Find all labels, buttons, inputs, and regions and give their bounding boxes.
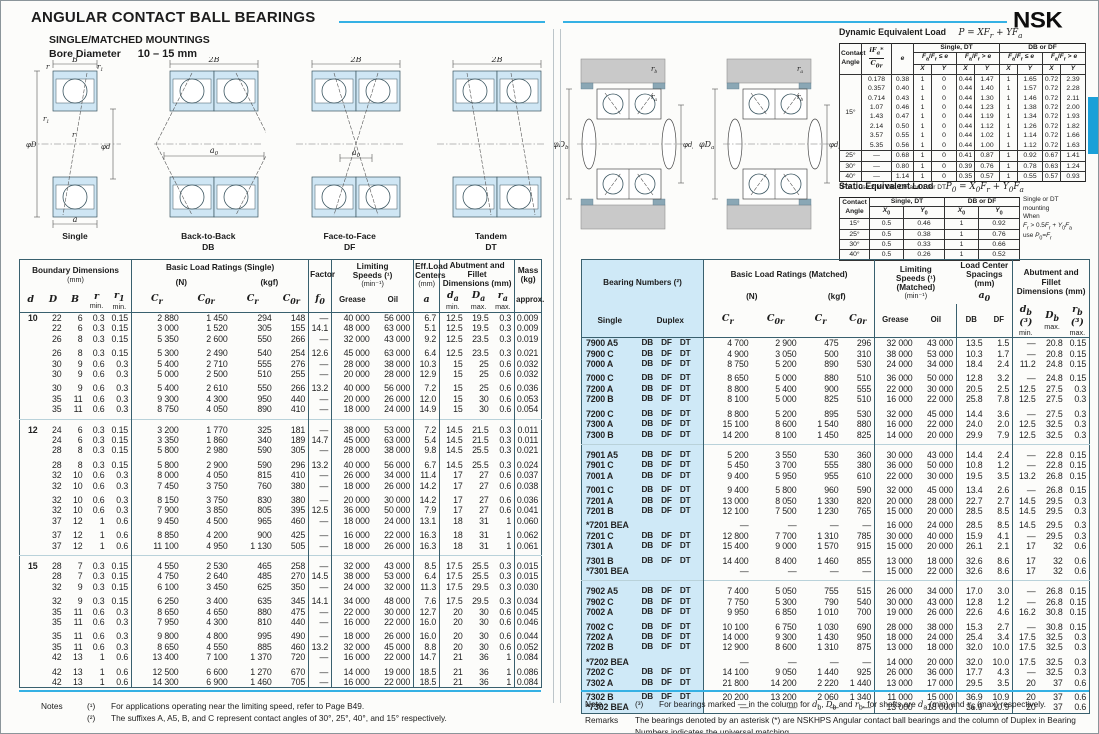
cell: 6 600 bbox=[182, 667, 231, 677]
table-row: 35110.60.38 6504 650880475—22 00030 0001… bbox=[20, 607, 542, 617]
cell: 20 bbox=[440, 617, 466, 627]
cell: 5.4 bbox=[414, 435, 440, 445]
cell: 0.3 bbox=[86, 323, 108, 333]
cell: 10 bbox=[65, 495, 86, 505]
cell: 0.5 bbox=[870, 219, 904, 229]
cell: 30 000 bbox=[916, 471, 957, 481]
cell: — bbox=[309, 516, 332, 526]
cell: 32 bbox=[42, 495, 65, 505]
cell: 18 bbox=[440, 541, 466, 551]
cell: 705 bbox=[275, 677, 309, 688]
cell: 258 bbox=[275, 561, 309, 571]
cell: 20 000 bbox=[332, 495, 373, 505]
cell: 1 440 bbox=[800, 667, 842, 677]
cell: 30 bbox=[42, 383, 65, 393]
cell: 21 800 bbox=[704, 678, 752, 688]
table-row: 35110.60.38 7504 050890410—18 00024 0001… bbox=[20, 404, 542, 414]
cell: 5 800 bbox=[132, 460, 182, 470]
cell: 0.80 bbox=[892, 161, 914, 171]
cell: 24 bbox=[42, 425, 65, 435]
cell: DB DF DT bbox=[638, 506, 704, 516]
cell: 7 950 bbox=[132, 617, 182, 627]
cell: 0.3 bbox=[492, 323, 515, 333]
cell: 28.5 bbox=[957, 506, 986, 516]
cell: 8 bbox=[65, 445, 86, 455]
notes-right: Note (³) For bearings marked — in the co… bbox=[585, 698, 1091, 734]
cell: 0.6 bbox=[108, 677, 132, 688]
cell: 0.178 bbox=[862, 74, 892, 84]
table-row: 2870.30.154 7502 64048527014.538 00053 0… bbox=[20, 571, 542, 581]
cell: 270 bbox=[275, 571, 309, 581]
cell: 895 bbox=[800, 409, 842, 419]
cell: 14.4 bbox=[957, 450, 986, 460]
cell: — bbox=[309, 369, 332, 379]
cell: 2 600 bbox=[182, 334, 231, 344]
cell: 16 000 bbox=[332, 652, 373, 662]
cell: 30 bbox=[466, 631, 492, 641]
cell: 0.3 bbox=[492, 582, 515, 592]
cell: 0.3 bbox=[86, 348, 108, 358]
cell: 45 000 bbox=[916, 485, 957, 495]
cell: 0.15 bbox=[108, 445, 132, 455]
cell: 0.041 bbox=[515, 505, 542, 515]
cell: 875 bbox=[842, 642, 875, 652]
cell: 28 000 bbox=[332, 359, 373, 369]
table-row: 7202 BDB DF DT12 9008 6001 31087513 0001… bbox=[582, 642, 1090, 652]
cell: 1 430 bbox=[800, 632, 842, 642]
cell: 63 000 bbox=[373, 323, 414, 333]
cell: 0.3 bbox=[86, 460, 108, 470]
cell: 29.5 bbox=[466, 596, 492, 606]
cell: DB DF DT bbox=[638, 556, 704, 566]
cell: — bbox=[1013, 531, 1039, 541]
table-row: 3090.60.35 4002 61055026613.240 00056 00… bbox=[20, 383, 542, 393]
cell: 1 bbox=[914, 131, 932, 140]
cell: 0.6 bbox=[86, 607, 108, 617]
cell: 1 130 bbox=[231, 541, 275, 551]
cell: 0.084 bbox=[515, 677, 542, 688]
col-factor: Factor bbox=[309, 260, 332, 290]
cell: 32 bbox=[42, 470, 65, 480]
cell: 790 bbox=[800, 597, 842, 607]
cell: 15 bbox=[20, 561, 42, 571]
cell: 28 000 bbox=[875, 622, 916, 632]
title-rule-left bbox=[339, 21, 545, 23]
cell: DB DF DT bbox=[638, 597, 704, 607]
svg-text:a: a bbox=[73, 215, 78, 224]
cell: 0 bbox=[932, 141, 957, 151]
cell: 1.02 bbox=[975, 131, 1000, 140]
cell: 7201 A bbox=[582, 496, 638, 506]
cell: 0.15 bbox=[108, 460, 132, 470]
bearing-diagram-db: 2Ba0 bbox=[150, 57, 266, 229]
cell: 16 000 bbox=[875, 394, 916, 404]
cell bbox=[20, 470, 42, 480]
cell: 610 bbox=[842, 471, 875, 481]
cell: 1 bbox=[1000, 151, 1018, 161]
cell: 410 bbox=[275, 470, 309, 480]
cell: 7300 B bbox=[582, 430, 638, 440]
cell: 0.009 bbox=[515, 312, 542, 323]
cell: 915 bbox=[842, 541, 875, 551]
cell: 475 bbox=[275, 607, 309, 617]
cell: 18 000 bbox=[332, 516, 373, 526]
cell: 3 750 bbox=[182, 481, 231, 491]
cell: 11 bbox=[65, 394, 86, 404]
cell: 0.15 bbox=[108, 435, 132, 445]
cell: 880 bbox=[842, 419, 875, 429]
cell: 1 bbox=[945, 219, 979, 229]
cell: 900 bbox=[231, 530, 275, 540]
cell: 42 bbox=[42, 677, 65, 688]
cell: 8.5 bbox=[986, 520, 1013, 530]
cell: 20 000 bbox=[916, 541, 957, 551]
cell: 14 100 bbox=[704, 667, 752, 677]
table-row: 102260.30.152 8801 450294148—40 00056 00… bbox=[20, 312, 542, 323]
cell: 555 bbox=[800, 460, 842, 470]
cell: 0 bbox=[932, 131, 957, 140]
cell: 380 bbox=[842, 460, 875, 470]
cell: 10 bbox=[20, 312, 42, 323]
remarks-label: Remarks bbox=[585, 714, 633, 734]
cell: 995 bbox=[231, 631, 275, 641]
cell: 2 710 bbox=[182, 359, 231, 369]
cell: 825 bbox=[800, 394, 842, 404]
table-row: 7202 ADB DF DT14 0009 3001 43095018 0002… bbox=[582, 632, 1090, 642]
cell: 12.7 bbox=[414, 607, 440, 617]
cell: 56 000 bbox=[373, 312, 414, 323]
cell: 7202 C bbox=[582, 667, 638, 677]
cell: 0.3 bbox=[1066, 506, 1090, 516]
cell: 16 000 bbox=[332, 530, 373, 540]
cell: 635 bbox=[231, 596, 275, 606]
cell: 1 bbox=[1000, 122, 1018, 131]
cell: 380 bbox=[275, 495, 309, 505]
cell: 31 bbox=[466, 541, 492, 551]
cell: 2.5 bbox=[986, 384, 1013, 394]
cell: 380 bbox=[275, 481, 309, 491]
cell: 9.2 bbox=[414, 334, 440, 344]
matched-bearings-table-wrap: Bearing Numbers (²) Basic Load Ratings (… bbox=[581, 259, 1089, 714]
table-row: 2260.30.153 0001 52030515514.148 00063 0… bbox=[20, 323, 542, 333]
cell: 7901 A5 bbox=[582, 450, 638, 460]
cell: 1 270 bbox=[231, 667, 275, 677]
cell: DB DF DT bbox=[638, 485, 704, 495]
cell: 0.011 bbox=[515, 425, 542, 435]
cell: 1.2 bbox=[986, 597, 1013, 607]
cell: 32 bbox=[1039, 566, 1066, 576]
cell bbox=[20, 667, 42, 677]
cell: 7 500 bbox=[752, 506, 800, 516]
table-row: 0.7140.43100.441.3011.460.722.11 bbox=[840, 94, 1086, 103]
cell: 0.3 bbox=[1066, 520, 1090, 530]
cell: 20 000 bbox=[916, 430, 957, 440]
cell: 3.57 bbox=[862, 131, 892, 140]
cell: 45 000 bbox=[916, 409, 957, 419]
cell: 8 100 bbox=[704, 394, 752, 404]
cell: 26 000 bbox=[373, 631, 414, 641]
cell: 0.44 bbox=[957, 84, 975, 93]
cell: 32 bbox=[1039, 556, 1066, 566]
cell: DB DF DT bbox=[638, 430, 704, 440]
cell: 15° bbox=[840, 74, 862, 150]
cell: 0.76 bbox=[979, 229, 1020, 239]
cell: 26.8 bbox=[1039, 485, 1066, 495]
table-row: 7201 BDB DF DT12 1007 5001 23076515 0002… bbox=[582, 506, 1090, 516]
cell: 24 000 bbox=[373, 404, 414, 414]
table-row: *7201 BEA————16 00024 00028.58.514.529.5… bbox=[582, 520, 1090, 530]
cell: — bbox=[704, 566, 752, 576]
cell: 20.8 bbox=[1039, 349, 1066, 359]
cell: 11 bbox=[65, 631, 86, 641]
cell: 8.5 bbox=[414, 561, 440, 571]
bearing-diagram-df: 2Ba0 bbox=[292, 57, 408, 229]
cell: 14 000 bbox=[704, 632, 752, 642]
cell: 10 100 bbox=[704, 622, 752, 632]
cell: 8 750 bbox=[704, 359, 752, 369]
cell bbox=[20, 652, 42, 662]
svg-text:r1: r1 bbox=[97, 63, 103, 73]
cell: 32 bbox=[42, 596, 65, 606]
cell: DB DF DT bbox=[638, 642, 704, 652]
cell: 5 400 bbox=[132, 359, 182, 369]
table-row: 7302 ADB DF DT21 80014 2002 2201 44013 0… bbox=[582, 678, 1090, 688]
cell: 7202 B bbox=[582, 642, 638, 652]
cell bbox=[20, 383, 42, 393]
cell: 22 000 bbox=[373, 530, 414, 540]
cell: 0.15 bbox=[1066, 460, 1090, 470]
cell: DB DF DT bbox=[638, 359, 704, 369]
cell: 7301 A bbox=[582, 541, 638, 551]
cell: 7 100 bbox=[182, 652, 231, 662]
cell: 1.38 bbox=[1018, 103, 1043, 112]
col-load-ratings-matched: Basic Load Ratings (Matched) bbox=[704, 260, 875, 290]
cell: 1.63 bbox=[1061, 141, 1086, 151]
cell: 19 000 bbox=[875, 607, 916, 617]
cell: 590 bbox=[842, 485, 875, 495]
cell: 30 000 bbox=[373, 607, 414, 617]
cell: 6 bbox=[65, 425, 86, 435]
cell: 30° bbox=[840, 161, 862, 171]
cell: 6 250 bbox=[132, 596, 182, 606]
cell: 0.053 bbox=[515, 394, 542, 404]
cell: 0.024 bbox=[515, 460, 542, 470]
cell: 11 bbox=[65, 607, 86, 617]
cell: 26.8 bbox=[1039, 597, 1066, 607]
cell: 30 bbox=[466, 404, 492, 414]
cell: 3 000 bbox=[132, 323, 182, 333]
cell: — bbox=[309, 530, 332, 540]
table-row: 1.070.46100.441.2311.380.722.00 bbox=[840, 103, 1086, 112]
cell: 395 bbox=[275, 505, 309, 515]
cell: 0.15 bbox=[108, 571, 132, 581]
cell: 15.3 bbox=[957, 622, 986, 632]
cell: 0.72 bbox=[1043, 84, 1061, 93]
cell: 26.8 bbox=[1039, 586, 1066, 596]
cell: 7301 B bbox=[582, 556, 638, 566]
cell: 1 bbox=[492, 677, 515, 688]
cell: — bbox=[800, 520, 842, 530]
cell: 0.6 bbox=[492, 642, 515, 652]
table-row: 7002 CDB DF DT10 1006 7501 03069028 0003… bbox=[582, 622, 1090, 632]
cell: 43 000 bbox=[373, 334, 414, 344]
cell: 32.5 bbox=[1039, 632, 1066, 642]
cell: 14.5 bbox=[440, 460, 466, 470]
cell: 0.15 bbox=[108, 334, 132, 344]
cell: 0.38 bbox=[904, 229, 945, 239]
cell: 0.714 bbox=[862, 94, 892, 103]
cell: 0.15 bbox=[1066, 338, 1090, 349]
cell: 0.3 bbox=[492, 445, 515, 455]
cell: 1 450 bbox=[800, 430, 842, 440]
cell: 32 000 bbox=[875, 485, 916, 495]
cell: 63 000 bbox=[373, 348, 414, 358]
cell: DB DF DT bbox=[638, 409, 704, 419]
cell: 24 000 bbox=[875, 359, 916, 369]
cell: 29.5 bbox=[466, 582, 492, 592]
cell: 17.5 bbox=[440, 571, 466, 581]
cell: 360 bbox=[842, 450, 875, 460]
cell: 0.33 bbox=[904, 240, 945, 250]
cell: 0.3 bbox=[108, 470, 132, 480]
cell: 0.3 bbox=[492, 561, 515, 571]
cell: 0.6 bbox=[86, 404, 108, 414]
table-row: 1.430.47100.441.1911.340.721.93 bbox=[840, 112, 1086, 121]
cell: — bbox=[800, 657, 842, 667]
cell: 15 bbox=[440, 394, 466, 404]
cell: 7200 A bbox=[582, 384, 638, 394]
cell: 29.5 bbox=[1039, 531, 1066, 541]
cell: 1.82 bbox=[1061, 122, 1086, 131]
cell: — bbox=[1013, 349, 1039, 359]
cell: 1 460 bbox=[231, 677, 275, 688]
cell: 25 bbox=[466, 359, 492, 369]
cell: *7301 BEA bbox=[582, 566, 638, 576]
cell: 1 bbox=[492, 667, 515, 677]
cell: 1 440 bbox=[842, 678, 875, 688]
cell: 7 bbox=[65, 561, 86, 571]
cell: 0.44 bbox=[957, 94, 975, 103]
table-row: 7301 ADB DF DT15 4009 0001 57091515 0002… bbox=[582, 541, 1090, 551]
cell: 23.5 bbox=[466, 334, 492, 344]
cell: 475 bbox=[800, 338, 842, 349]
cell: — bbox=[309, 334, 332, 344]
single-bearings-table-wrap: Boundary Dimensions(mm) Basic Load Ratin… bbox=[19, 259, 541, 688]
cell: 5 400 bbox=[132, 383, 182, 393]
cell: 2 900 bbox=[182, 460, 231, 470]
cell: 12 bbox=[65, 541, 86, 551]
cell: 27 bbox=[466, 470, 492, 480]
cell: 34 000 bbox=[332, 596, 373, 606]
svg-text:φD: φD bbox=[26, 141, 37, 149]
cell: DB DF DT bbox=[638, 632, 704, 642]
cell: 43 000 bbox=[916, 597, 957, 607]
cell: — bbox=[309, 470, 332, 480]
cell: 1 bbox=[492, 541, 515, 551]
cell: 9 bbox=[65, 359, 86, 369]
cell bbox=[20, 394, 42, 404]
cell: 28 000 bbox=[332, 445, 373, 455]
cell: 18.5 bbox=[414, 667, 440, 677]
cell: 28 000 bbox=[373, 369, 414, 379]
cell: 465 bbox=[231, 561, 275, 571]
cell: 22 000 bbox=[916, 566, 957, 576]
cell: — bbox=[309, 561, 332, 571]
cell: 6 900 bbox=[182, 677, 231, 688]
cell: 25.8 bbox=[957, 394, 986, 404]
cell: 32 bbox=[42, 505, 65, 515]
cell: 15 400 bbox=[704, 541, 752, 551]
cell: 7902 C bbox=[582, 597, 638, 607]
bottom-rule-left bbox=[19, 690, 541, 692]
cell: 0.3 bbox=[492, 435, 515, 445]
cell: 17.5 bbox=[440, 561, 466, 571]
cell: 0.6 bbox=[86, 470, 108, 480]
cell: 1.2 bbox=[986, 460, 1013, 470]
cell: 17.5 bbox=[440, 596, 466, 606]
cell: *7202 BEA bbox=[582, 657, 638, 667]
cell: 0.50 bbox=[892, 122, 914, 131]
cell: 9 bbox=[65, 582, 86, 592]
table-row: 30°—0.80100.390.7610.780.631.24 bbox=[840, 161, 1086, 171]
cell: 0.060 bbox=[515, 516, 542, 526]
cell: 7 900 bbox=[132, 505, 182, 515]
cell: 14.2 bbox=[414, 481, 440, 491]
cell: 12.5 bbox=[1013, 384, 1039, 394]
cell: 0.15 bbox=[108, 582, 132, 592]
cell: 12 900 bbox=[704, 642, 752, 652]
table-row: 7200 BDB DF DT8 1005 00082551016 00022 0… bbox=[582, 394, 1090, 404]
cell: 53 000 bbox=[373, 571, 414, 581]
cell: 0.3 bbox=[86, 425, 108, 435]
cell: — bbox=[309, 677, 332, 688]
cell: 0.3 bbox=[492, 348, 515, 358]
cell: 8 650 bbox=[132, 642, 182, 652]
cell: 0.15 bbox=[1066, 607, 1090, 617]
cell: 22.6 bbox=[957, 607, 986, 617]
cell: 1 bbox=[1000, 141, 1018, 151]
cell: 18 000 bbox=[916, 556, 957, 566]
cell: 0.3 bbox=[108, 505, 132, 515]
cell: 10.3 bbox=[414, 359, 440, 369]
cell: 8 bbox=[65, 460, 86, 470]
cell: 7001 A bbox=[582, 471, 638, 481]
cell: 7900 C bbox=[582, 349, 638, 359]
cell: — bbox=[309, 312, 332, 323]
cell: 31 bbox=[466, 516, 492, 526]
cell: 0.3 bbox=[86, 596, 108, 606]
cell: 2 490 bbox=[182, 348, 231, 358]
col-ifa-c0r: iFa*C0r bbox=[862, 43, 892, 74]
cell: 30 000 bbox=[875, 597, 916, 607]
cell: 18 bbox=[440, 530, 466, 540]
cell: — bbox=[1013, 622, 1039, 632]
cell: 26.1 bbox=[957, 541, 986, 551]
cell: 0.72 bbox=[1043, 122, 1061, 131]
cell: 0.6 bbox=[108, 541, 132, 551]
cell: 0.44 bbox=[957, 103, 975, 112]
cell: 1 bbox=[1000, 74, 1018, 84]
cell: — bbox=[1013, 586, 1039, 596]
cell: 15° bbox=[840, 219, 870, 229]
cell: 8 650 bbox=[704, 373, 752, 383]
cell: 42 bbox=[42, 652, 65, 662]
cell: 14 200 bbox=[704, 430, 752, 440]
cell: 815 bbox=[231, 470, 275, 480]
table-row: 5.350.56100.441.0011.120.721.63 bbox=[840, 141, 1086, 151]
cell: 13 000 bbox=[875, 556, 916, 566]
table-row: 2880.30.155 8002 980590305—28 00038 0009… bbox=[20, 445, 542, 455]
